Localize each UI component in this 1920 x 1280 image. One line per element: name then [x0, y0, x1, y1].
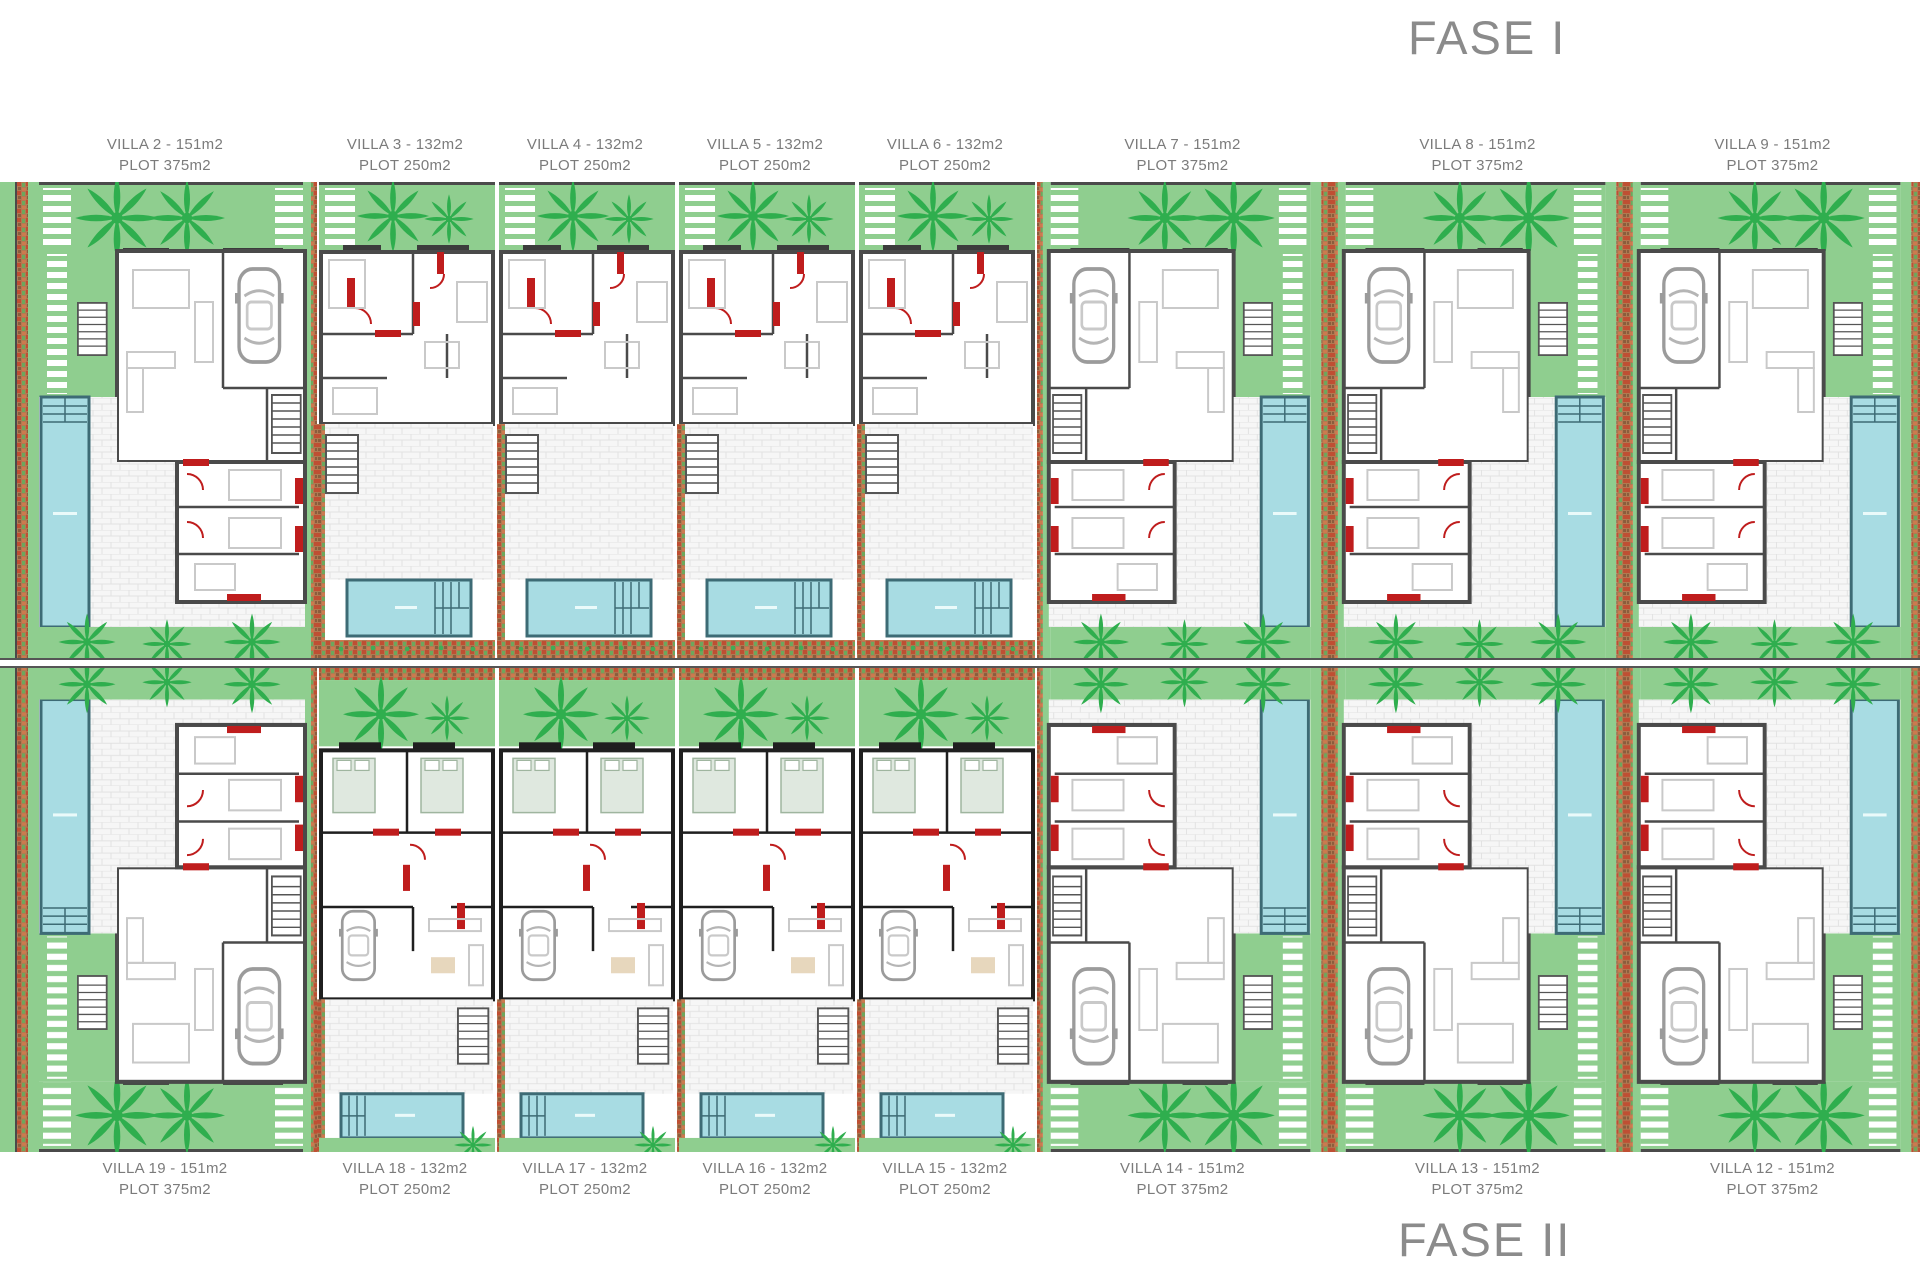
villa-15-floorplan	[857, 668, 1037, 1152]
phase-1-label-row: VILLA 2 - 151m2 PLOT 375m2 VILLA 3 - 132…	[0, 134, 1920, 180]
villa-15-plot-size: PLOT 250m2	[899, 1179, 991, 1200]
villa-8-plot	[1332, 182, 1627, 658]
villa-9-plot-size: PLOT 375m2	[1727, 155, 1819, 176]
villa-2-label: VILLA 2 - 151m2 PLOT 375m2	[15, 134, 315, 180]
villa-18-plot	[317, 668, 497, 1152]
villa-3-plot	[317, 182, 497, 658]
villa-6-plot	[857, 182, 1037, 658]
villa-18-label: VILLA 18 - 132m2 PLOT 250m2	[315, 1158, 495, 1204]
villa-14-floorplan	[1037, 668, 1332, 1152]
villa-7-name: VILLA 7 - 151m2	[1124, 134, 1240, 155]
villa-17-name: VILLA 17 - 132m2	[523, 1158, 648, 1179]
villa-3-name: VILLA 3 - 132m2	[347, 134, 463, 155]
villa-2-plot	[17, 182, 317, 658]
villa-9-name: VILLA 9 - 151m2	[1714, 134, 1830, 155]
left-edge-spacer	[0, 134, 15, 180]
villa-19-name: VILLA 19 - 151m2	[103, 1158, 228, 1179]
phase-2-plan-row	[0, 668, 1920, 1152]
villa-17-label: VILLA 17 - 132m2 PLOT 250m2	[495, 1158, 675, 1204]
villa-14-plot-size: PLOT 375m2	[1137, 1179, 1229, 1200]
villa-7-floorplan	[1037, 182, 1332, 658]
villa-6-label: VILLA 6 - 132m2 PLOT 250m2	[855, 134, 1035, 180]
villa-12-plot-size: PLOT 375m2	[1727, 1179, 1819, 1200]
villa-6-plot-size: PLOT 250m2	[899, 155, 991, 176]
villa-14-plot	[1037, 668, 1332, 1152]
villa-19-label: VILLA 19 - 151m2 PLOT 375m2	[15, 1158, 315, 1204]
phase-2-title: FASE II	[1398, 1212, 1571, 1267]
villa-3-label: VILLA 3 - 132m2 PLOT 250m2	[315, 134, 495, 180]
villa-19-plot-size: PLOT 375m2	[119, 1179, 211, 1200]
villa-18-floorplan	[317, 668, 497, 1152]
villa-12-label: VILLA 12 - 151m2 PLOT 375m2	[1625, 1158, 1920, 1204]
villa-4-label: VILLA 4 - 132m2 PLOT 250m2	[495, 134, 675, 180]
villa-16-label: VILLA 16 - 132m2 PLOT 250m2	[675, 1158, 855, 1204]
phase-1-title: FASE I	[1408, 10, 1566, 65]
villa-12-name: VILLA 12 - 151m2	[1710, 1158, 1835, 1179]
villa-8-floorplan	[1332, 182, 1627, 658]
site-plan-canvas: FASE I FASE II VILLA 2 - 151m2 PLOT 375m…	[0, 0, 1920, 1280]
villa-16-plot-size: PLOT 250m2	[719, 1179, 811, 1200]
villa-6-floorplan	[857, 182, 1037, 658]
villa-15-label: VILLA 15 - 132m2 PLOT 250m2	[855, 1158, 1035, 1204]
adjacent-plot-sliver	[0, 182, 17, 658]
villa-15-name: VILLA 15 - 132m2	[883, 1158, 1008, 1179]
villa-9-floorplan	[1627, 182, 1920, 658]
street-divider	[0, 658, 1920, 668]
villa-16-plot	[677, 668, 857, 1152]
villa-8-name: VILLA 8 - 151m2	[1419, 134, 1535, 155]
villa-7-plot	[1037, 182, 1332, 658]
adjacent-plot-sliver-bottom	[0, 668, 17, 1152]
villa-4-plot	[497, 182, 677, 658]
villa-18-name: VILLA 18 - 132m2	[343, 1158, 468, 1179]
villa-12-floorplan	[1627, 668, 1920, 1152]
villa-13-plot	[1332, 668, 1627, 1152]
villa-13-floorplan	[1332, 668, 1627, 1152]
villa-17-plot	[497, 668, 677, 1152]
villa-4-name: VILLA 4 - 132m2	[527, 134, 643, 155]
villa-16-floorplan	[677, 668, 857, 1152]
phase-1-plan-row	[0, 182, 1920, 658]
villa-5-name: VILLA 5 - 132m2	[707, 134, 823, 155]
villa-9-label: VILLA 9 - 151m2 PLOT 375m2	[1625, 134, 1920, 180]
villa-19-floorplan	[17, 668, 317, 1152]
phase-2-label-row: VILLA 19 - 151m2 PLOT 375m2 VILLA 18 - 1…	[0, 1158, 1920, 1204]
villa-12-plot	[1627, 668, 1920, 1152]
villa-5-floorplan	[677, 182, 857, 658]
left-edge-spacer-bottom	[0, 1158, 15, 1204]
villa-17-plot-size: PLOT 250m2	[539, 1179, 631, 1200]
villa-8-plot-size: PLOT 375m2	[1432, 155, 1524, 176]
villa-5-plot	[677, 182, 857, 658]
villa-3-plot-size: PLOT 250m2	[359, 155, 451, 176]
villa-7-label: VILLA 7 - 151m2 PLOT 375m2	[1035, 134, 1330, 180]
villa-5-plot-size: PLOT 250m2	[719, 155, 811, 176]
villa-13-plot-size: PLOT 375m2	[1432, 1179, 1524, 1200]
villa-13-label: VILLA 13 - 151m2 PLOT 375m2	[1330, 1158, 1625, 1204]
villa-15-plot	[857, 668, 1037, 1152]
villa-8-label: VILLA 8 - 151m2 PLOT 375m2	[1330, 134, 1625, 180]
villa-2-floorplan	[17, 182, 317, 658]
villa-7-plot-size: PLOT 375m2	[1137, 155, 1229, 176]
villa-6-name: VILLA 6 - 132m2	[887, 134, 1003, 155]
villa-14-name: VILLA 14 - 151m2	[1120, 1158, 1245, 1179]
villa-5-label: VILLA 5 - 132m2 PLOT 250m2	[675, 134, 855, 180]
villa-18-plot-size: PLOT 250m2	[359, 1179, 451, 1200]
villa-4-floorplan	[497, 182, 677, 658]
villa-4-plot-size: PLOT 250m2	[539, 155, 631, 176]
villa-19-plot	[17, 668, 317, 1152]
villa-2-plot-size: PLOT 375m2	[119, 155, 211, 176]
villa-17-floorplan	[497, 668, 677, 1152]
villa-3-floorplan	[317, 182, 497, 658]
villa-13-name: VILLA 13 - 151m2	[1415, 1158, 1540, 1179]
villa-2-name: VILLA 2 - 151m2	[107, 134, 223, 155]
villa-9-plot	[1627, 182, 1920, 658]
villa-16-name: VILLA 16 - 132m2	[703, 1158, 828, 1179]
villa-14-label: VILLA 14 - 151m2 PLOT 375m2	[1035, 1158, 1330, 1204]
